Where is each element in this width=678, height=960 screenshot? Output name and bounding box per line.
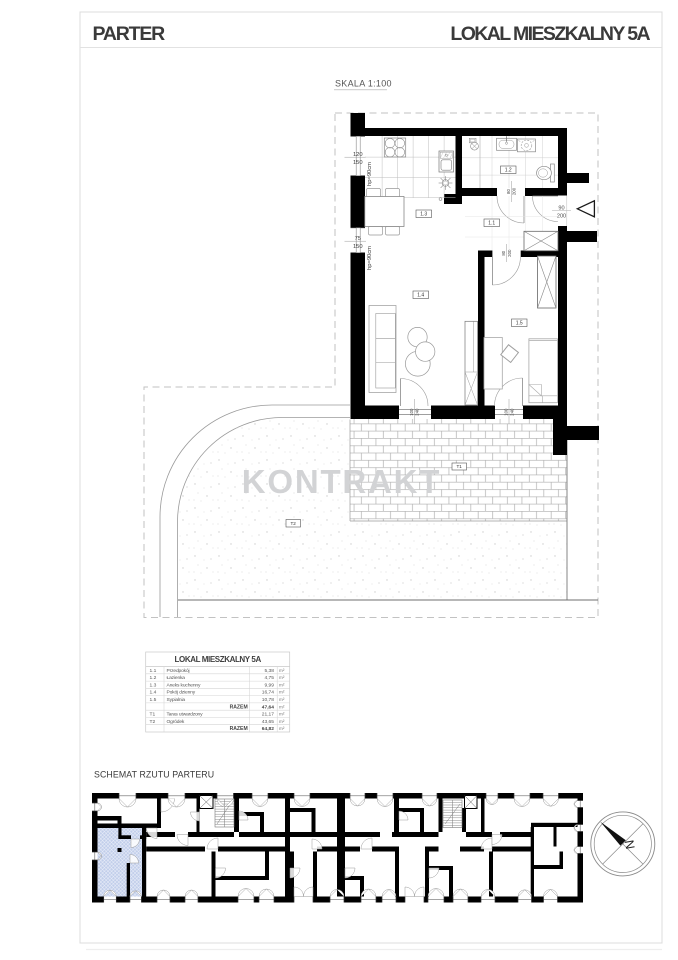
svg-text:80: 80 bbox=[501, 250, 506, 255]
svg-text:21,17: 21,17 bbox=[262, 712, 275, 718]
svg-text:RAZEM: RAZEM bbox=[230, 726, 248, 732]
svg-text:Aneks kuchenny: Aneks kuchenny bbox=[167, 683, 201, 689]
svg-text:Łazienka: Łazienka bbox=[167, 675, 186, 681]
svg-text:Pokój dzienny: Pokój dzienny bbox=[167, 690, 196, 696]
svg-text:200: 200 bbox=[557, 213, 566, 219]
svg-text:T2: T2 bbox=[291, 521, 297, 526]
svg-text:1.2: 1.2 bbox=[505, 167, 512, 173]
svg-text:10,78: 10,78 bbox=[262, 697, 275, 703]
svg-text:1.3: 1.3 bbox=[150, 683, 157, 689]
svg-text:1.5: 1.5 bbox=[516, 320, 523, 326]
svg-text:RAZEM: RAZEM bbox=[230, 704, 248, 710]
svg-text:SKALA 1:100: SKALA 1:100 bbox=[335, 79, 392, 89]
svg-text:1.1: 1.1 bbox=[150, 668, 157, 674]
svg-text:T1: T1 bbox=[457, 464, 463, 469]
svg-text:5,38: 5,38 bbox=[264, 668, 274, 674]
svg-text:hp=90cm: hp=90cm bbox=[367, 246, 373, 270]
svg-text:120: 120 bbox=[353, 152, 363, 158]
svg-text:47,64: 47,64 bbox=[262, 704, 275, 710]
svg-text:m²: m² bbox=[279, 712, 285, 717]
svg-text:m²: m² bbox=[279, 704, 285, 709]
svg-text:Przedpokój: Przedpokój bbox=[167, 668, 190, 674]
svg-text:Ogródek: Ogródek bbox=[167, 719, 185, 725]
svg-text:240: 240 bbox=[509, 408, 514, 416]
svg-text:1.4: 1.4 bbox=[417, 292, 424, 298]
svg-text:LOKAL MIESZKALNY 5A: LOKAL MIESZKALNY 5A bbox=[175, 655, 262, 664]
svg-text:100: 100 bbox=[504, 408, 509, 416]
svg-text:200: 200 bbox=[507, 249, 512, 257]
svg-text:m²: m² bbox=[279, 675, 285, 680]
svg-text:hp=90cm: hp=90cm bbox=[367, 162, 373, 186]
svg-text:SCHEMAT RZUTU PARTERU: SCHEMAT RZUTU PARTERU bbox=[94, 770, 214, 780]
svg-text:m²: m² bbox=[279, 719, 285, 724]
svg-text:1.4: 1.4 bbox=[150, 690, 157, 696]
svg-text:1.3: 1.3 bbox=[420, 211, 427, 217]
svg-text:1.5: 1.5 bbox=[150, 697, 157, 703]
svg-text:m²: m² bbox=[279, 683, 285, 688]
svg-text:T1: T1 bbox=[150, 712, 156, 718]
svg-text:100: 100 bbox=[409, 408, 414, 416]
svg-text:T2: T2 bbox=[150, 719, 156, 725]
svg-text:9,99: 9,99 bbox=[264, 683, 274, 689]
svg-text:1.2: 1.2 bbox=[150, 675, 157, 681]
svg-text:240: 240 bbox=[415, 408, 420, 416]
svg-text:80: 80 bbox=[506, 189, 511, 194]
svg-text:75: 75 bbox=[355, 236, 361, 242]
svg-text:4,75: 4,75 bbox=[264, 675, 274, 681]
svg-text:43,65: 43,65 bbox=[262, 719, 275, 725]
svg-text:150: 150 bbox=[353, 244, 363, 250]
svg-text:KONTRAKT: KONTRAKT bbox=[242, 463, 442, 500]
svg-text:m²: m² bbox=[279, 726, 285, 731]
svg-text:200: 200 bbox=[512, 187, 517, 195]
svg-text:16,74: 16,74 bbox=[262, 690, 275, 696]
svg-text:64,82: 64,82 bbox=[262, 726, 275, 732]
svg-text:PARTER: PARTER bbox=[93, 23, 166, 45]
svg-text:LOKAL MIESZKALNY 5A: LOKAL MIESZKALNY 5A bbox=[450, 23, 650, 45]
svg-text:Sypialnia: Sypialnia bbox=[167, 697, 186, 703]
svg-text:m²: m² bbox=[279, 668, 285, 673]
svg-text:m²: m² bbox=[279, 690, 285, 695]
svg-text:Taras utwardzony: Taras utwardzony bbox=[167, 712, 204, 718]
svg-text:1.1: 1.1 bbox=[488, 220, 495, 226]
svg-text:m²: m² bbox=[279, 697, 285, 702]
svg-text:150: 150 bbox=[353, 160, 363, 166]
